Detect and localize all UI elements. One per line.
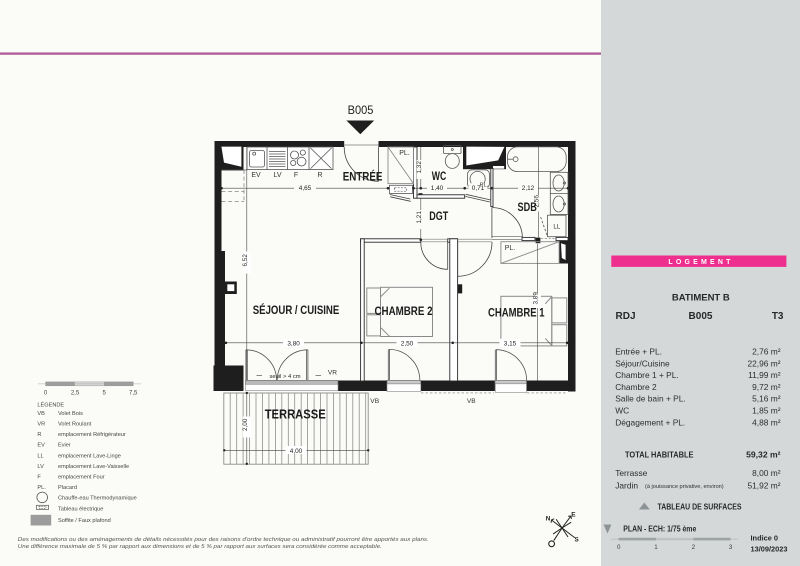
svg-text:WC: WC: [432, 171, 447, 183]
svg-text:B005: B005: [689, 311, 713, 322]
svg-text:E: E: [571, 512, 576, 519]
svg-text:Terrasse: Terrasse: [615, 468, 647, 478]
svg-text:EV: EV: [37, 443, 45, 449]
svg-text:WC: WC: [615, 406, 629, 416]
svg-text:BATIMENT B: BATIMENT B: [672, 293, 730, 304]
svg-text:Volet Roulant: Volet Roulant: [58, 422, 92, 428]
svg-text:B005: B005: [348, 105, 374, 117]
svg-text:VR: VR: [37, 422, 45, 428]
svg-text:Tableau électrique: Tableau électrique: [58, 506, 103, 512]
svg-text:Chauffe-eau Thermodynamique: Chauffe-eau Thermodynamique: [58, 496, 137, 502]
svg-text:Evier: Evier: [58, 443, 71, 449]
svg-text:TABLEAU DE SURFACES: TABLEAU DE SURFACES: [658, 503, 743, 512]
svg-text:seuil > 4 cm: seuil > 4 cm: [269, 374, 300, 380]
svg-text:Chambre 1 + PL.: Chambre 1 + PL.: [615, 370, 679, 380]
svg-text:PL.: PL.: [505, 245, 516, 252]
svg-text:ENTRÉE: ENTRÉE: [343, 169, 383, 184]
svg-text:PL.: PL.: [399, 150, 410, 157]
svg-text:CHAMBRE 1: CHAMBRE 1: [488, 306, 545, 320]
svg-text:51,92 m²: 51,92 m²: [747, 480, 780, 490]
svg-text:13/09/2023: 13/09/2023: [751, 544, 788, 553]
svg-text:PL.: PL.: [480, 183, 489, 189]
svg-text:Séjour/Cuisine: Séjour/Cuisine: [615, 358, 670, 368]
svg-text:1,21: 1,21: [416, 211, 423, 224]
svg-text:TERRASSE: TERRASSE: [265, 407, 326, 422]
svg-text:SDB: SDB: [518, 202, 537, 214]
svg-text:T3: T3: [772, 311, 784, 322]
svg-text:R: R: [37, 432, 41, 438]
svg-text:3,15: 3,15: [504, 341, 517, 348]
svg-text:LÉGENDE: LÉGENDE: [37, 401, 64, 408]
svg-text:59,32 m²: 59,32 m²: [746, 450, 781, 460]
svg-text:0: 0: [617, 544, 621, 551]
svg-text:VB: VB: [37, 411, 45, 417]
svg-text:Dégagement + PL.: Dégagement + PL.: [615, 417, 685, 427]
svg-text:DGT: DGT: [429, 211, 448, 223]
svg-text:4,88 m²: 4,88 m²: [752, 417, 781, 427]
svg-text:6,52: 6,52: [242, 254, 249, 267]
svg-text:1,40: 1,40: [431, 185, 444, 192]
svg-text:SÉJOUR / CUISINE: SÉJOUR / CUISINE: [253, 302, 340, 317]
svg-text:Une différence maximale de 5 %: Une différence maximale de 5 % par rappo…: [18, 544, 382, 550]
svg-text:2,76 m²: 2,76 m²: [752, 347, 781, 357]
svg-text:2,00: 2,00: [242, 418, 249, 431]
svg-text:3: 3: [729, 544, 733, 551]
svg-text:(à jouissance privative, envir: (à jouissance privative, environ): [645, 484, 724, 490]
svg-text:5,16 m²: 5,16 m²: [752, 394, 781, 404]
svg-text:1,85 m²: 1,85 m²: [752, 406, 781, 416]
svg-text:Soffite / Faux plafond: Soffite / Faux plafond: [58, 518, 111, 524]
svg-text:LV: LV: [37, 464, 44, 470]
svg-text:4,00: 4,00: [290, 448, 303, 455]
svg-text:4,65: 4,65: [299, 185, 312, 192]
svg-text:Indice 0: Indice 0: [751, 533, 779, 542]
svg-text:22,96 m²: 22,96 m²: [747, 358, 780, 368]
svg-text:LV: LV: [273, 172, 281, 179]
svg-text:F: F: [294, 172, 298, 179]
svg-text:2,50: 2,50: [401, 341, 414, 348]
svg-text:8,00 m²: 8,00 m²: [752, 468, 781, 478]
svg-text:LL: LL: [553, 224, 560, 231]
svg-text:Salle de bain + PL.: Salle de bain + PL.: [615, 394, 686, 404]
svg-text:2: 2: [692, 544, 696, 551]
svg-text:Des modifications ou des aména: Des modifications ou des aménagements de…: [18, 537, 429, 543]
svg-text:3,89: 3,89: [532, 292, 539, 305]
svg-text:VB: VB: [467, 398, 476, 405]
svg-text:PLAN - ECH: 1/75 ème: PLAN - ECH: 1/75 ème: [623, 525, 696, 534]
svg-text:9,72 m²: 9,72 m²: [752, 382, 781, 392]
svg-text:Chambre 2: Chambre 2: [615, 382, 657, 392]
svg-text:emplacement Lave-Linge: emplacement Lave-Linge: [58, 453, 121, 459]
svg-text:emplacement Four: emplacement Four: [58, 475, 105, 481]
svg-text:Volet Bois: Volet Bois: [58, 411, 83, 417]
svg-text:LOGEMENT: LOGEMENT: [668, 259, 733, 266]
svg-text:3,80: 3,80: [287, 341, 300, 348]
svg-text:emplacement Réfrigérateur: emplacement Réfrigérateur: [58, 432, 126, 438]
svg-text:TOTAL HABITABLE: TOTAL HABITABLE: [625, 450, 694, 460]
svg-text:RDJ: RDJ: [616, 311, 636, 322]
svg-text:VR: VR: [328, 370, 337, 377]
svg-text:11,99 m²: 11,99 m²: [748, 370, 781, 380]
svg-text:2,12: 2,12: [522, 185, 535, 192]
svg-text:emplacement Lave-Vaisselle: emplacement Lave-Vaisselle: [58, 464, 129, 470]
svg-text:7,5: 7,5: [129, 391, 138, 397]
svg-text:EV: EV: [251, 172, 261, 179]
svg-text:F: F: [37, 475, 41, 481]
svg-text:LL: LL: [37, 453, 43, 459]
svg-text:N: N: [546, 516, 551, 523]
svg-text:S: S: [574, 536, 579, 543]
svg-text:R: R: [317, 172, 322, 179]
svg-text:Entrée + PL.: Entrée + PL.: [615, 347, 662, 357]
svg-text:PL.: PL.: [37, 485, 46, 491]
svg-text:1,32: 1,32: [416, 161, 423, 174]
svg-text:2,5: 2,5: [71, 391, 80, 397]
svg-text:Jardin: Jardin: [615, 480, 638, 490]
svg-text:1: 1: [654, 544, 658, 551]
svg-text:Placard: Placard: [58, 485, 77, 491]
svg-text:CHAMBRE 2: CHAMBRE 2: [375, 304, 433, 318]
svg-text:VB: VB: [370, 398, 379, 405]
